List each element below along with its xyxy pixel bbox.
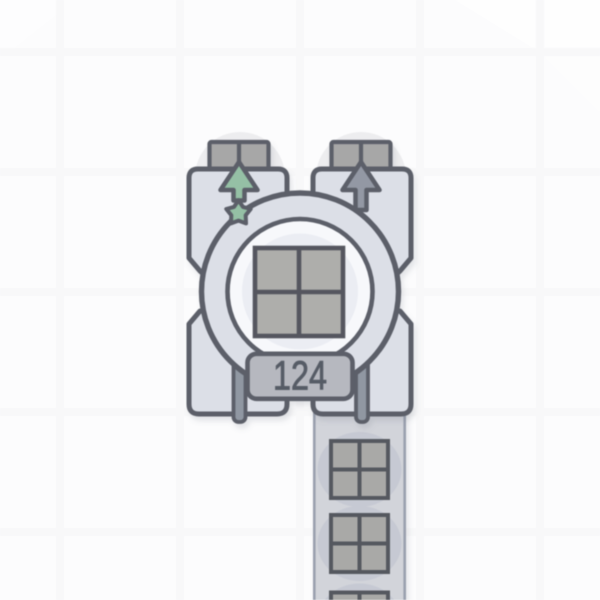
svg-text:124: 124 [273,353,327,399]
